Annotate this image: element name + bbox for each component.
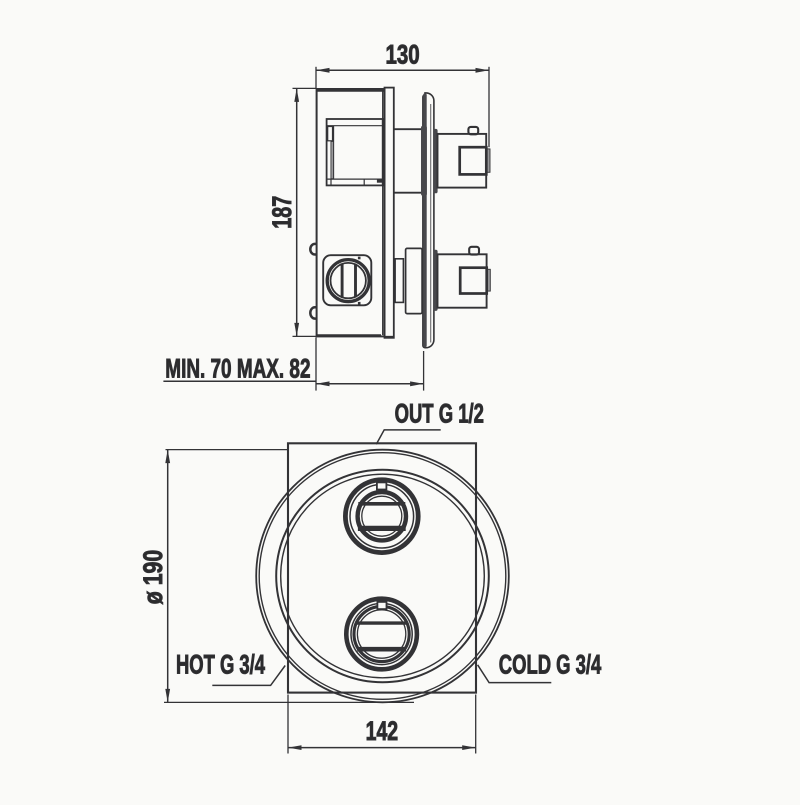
svg-text:130: 130 <box>386 40 420 70</box>
svg-text:ø 190: ø 190 <box>138 550 168 604</box>
svg-text:COLD G 3/4: COLD G 3/4 <box>499 650 602 680</box>
svg-text:142: 142 <box>366 716 399 746</box>
svg-text:HOT G 3/4: HOT G 3/4 <box>176 650 265 680</box>
svg-text:OUT G 1/2: OUT G 1/2 <box>395 398 484 428</box>
svg-text:MIN. 70 MAX. 82: MIN. 70 MAX. 82 <box>165 353 310 383</box>
svg-text:187: 187 <box>267 196 297 229</box>
